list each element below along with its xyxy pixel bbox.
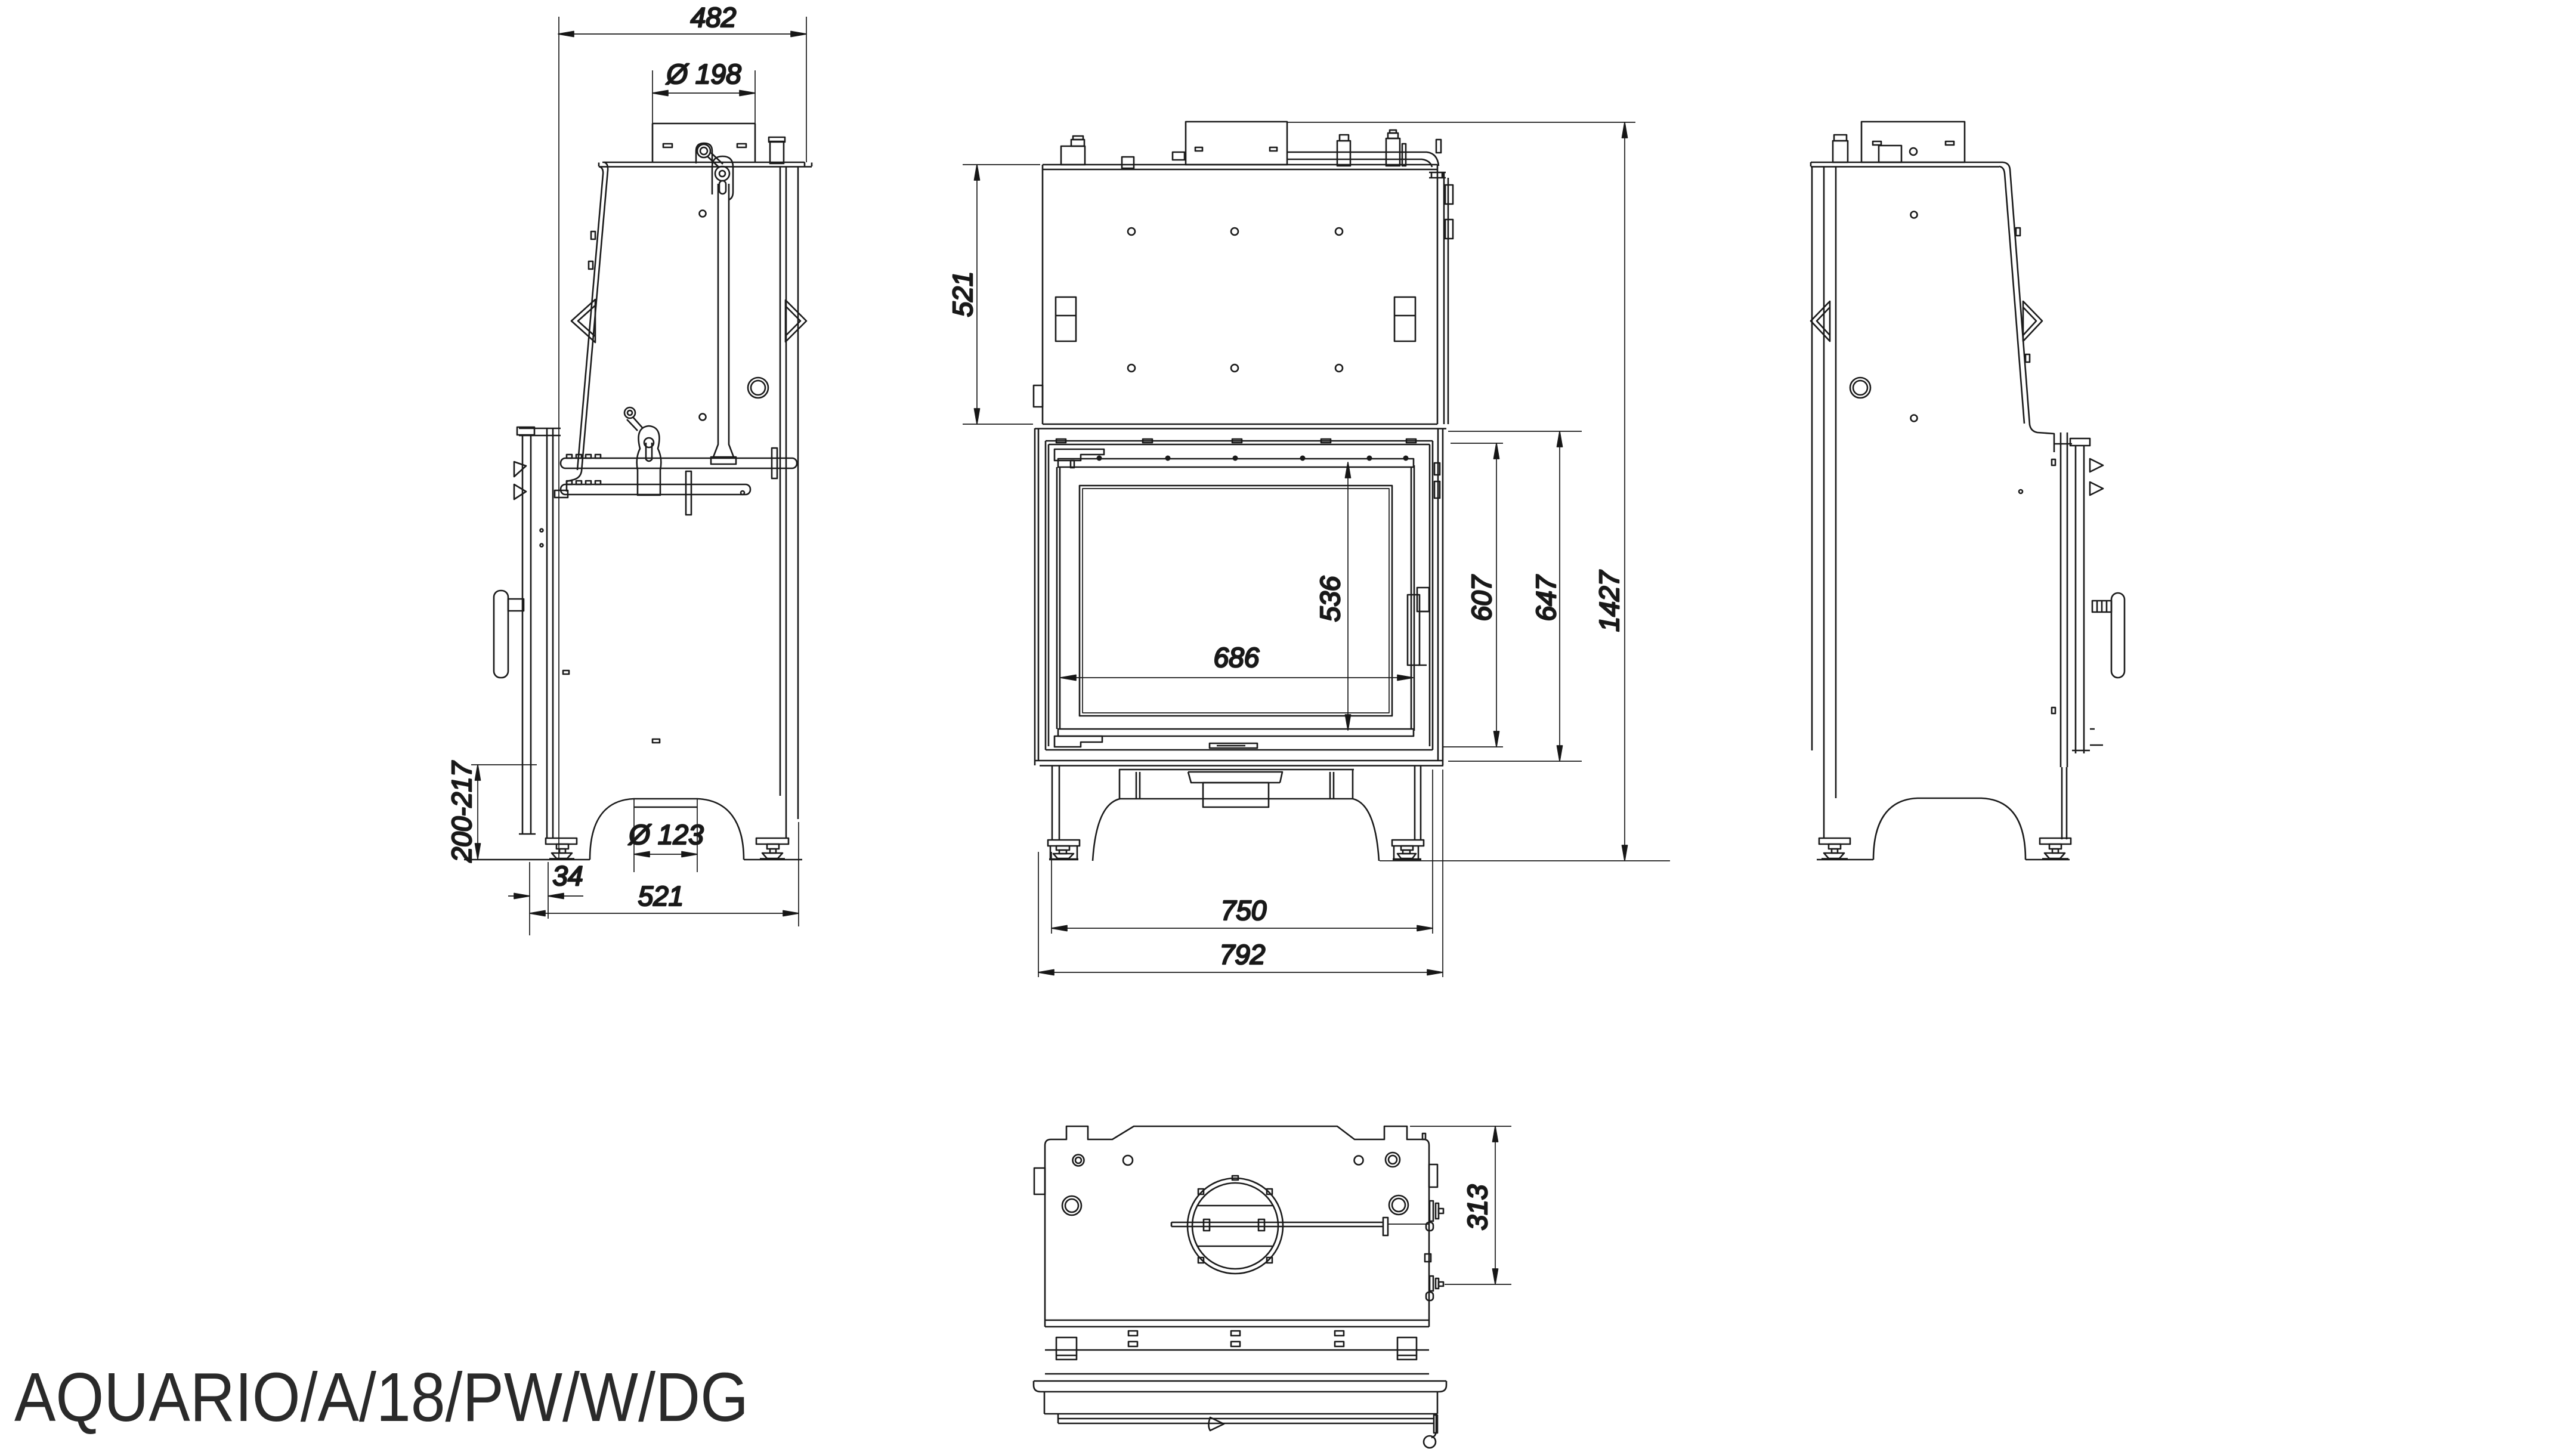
- svg-text:Ø 123: Ø 123: [627, 819, 704, 850]
- svg-text:200-217: 200-217: [446, 761, 477, 863]
- svg-text:482: 482: [691, 2, 737, 33]
- svg-text:Ø 198: Ø 198: [665, 58, 741, 89]
- svg-text:750: 750: [1221, 895, 1267, 926]
- svg-text:647: 647: [1530, 574, 1561, 621]
- svg-text:686: 686: [1214, 642, 1260, 673]
- svg-text:1427: 1427: [1594, 570, 1625, 632]
- svg-text:313: 313: [1462, 1184, 1493, 1230]
- svg-text:521: 521: [947, 271, 978, 317]
- svg-text:521: 521: [638, 880, 684, 912]
- svg-text:AQUARIO/A/18/PW/W/DG: AQUARIO/A/18/PW/W/DG: [14, 1358, 749, 1436]
- svg-text:607: 607: [1466, 574, 1497, 621]
- svg-text:536: 536: [1315, 576, 1346, 622]
- svg-text:34: 34: [552, 860, 583, 891]
- svg-text:792: 792: [1220, 939, 1266, 970]
